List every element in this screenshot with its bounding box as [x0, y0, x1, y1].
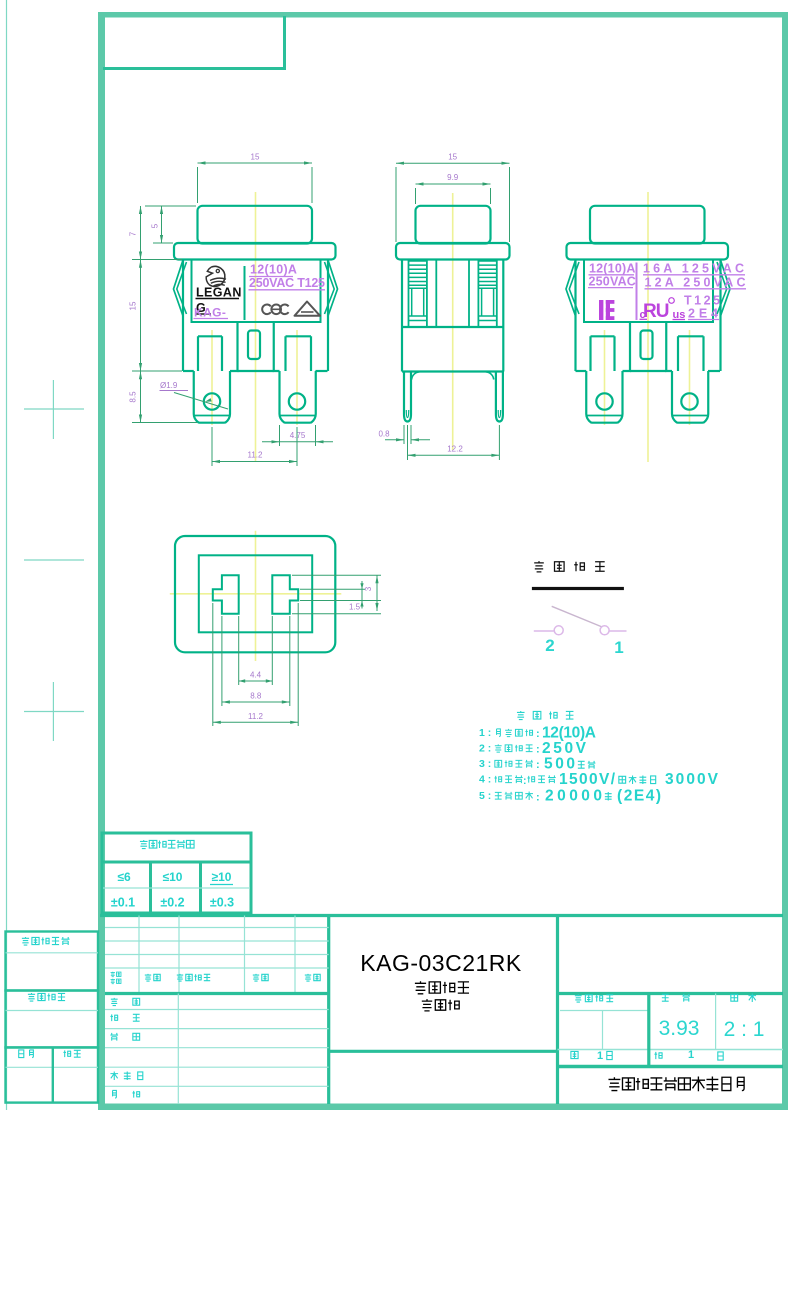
svg-text:±0.3: ±0.3: [210, 896, 234, 910]
svg-text:11.2: 11.2: [248, 451, 264, 460]
svg-text:2E4: 2E4: [688, 307, 718, 321]
svg-text:LEGAN: LEGAN: [196, 286, 242, 300]
svg-text:12(10)A: 12(10)A: [250, 263, 297, 277]
svg-text::: :: [536, 728, 540, 740]
svg-text:KAG-03C21RK: KAG-03C21RK: [360, 950, 522, 976]
svg-text:≤10: ≤10: [163, 870, 183, 884]
svg-text::: :: [536, 759, 540, 771]
svg-text:0.8: 0.8: [378, 430, 390, 439]
svg-text:2: 2: [545, 636, 554, 655]
svg-text:2 : 1: 2 : 1: [724, 1018, 765, 1041]
svg-text:8.8: 8.8: [250, 692, 262, 701]
svg-text:12(10)A: 12(10)A: [542, 725, 596, 742]
svg-text:9.9: 9.9: [447, 173, 459, 182]
svg-text:1: 1: [614, 638, 623, 657]
svg-text:3 :: 3 :: [479, 758, 491, 770]
svg-text:15: 15: [129, 301, 138, 310]
svg-text:4.75: 4.75: [290, 431, 306, 440]
svg-text:8.5: 8.5: [129, 391, 138, 403]
svg-text:≤6: ≤6: [117, 870, 131, 884]
svg-text:16A 125VAC: 16A 125VAC: [643, 262, 744, 276]
svg-text:15: 15: [251, 153, 260, 162]
svg-text:KAG-: KAG-: [194, 306, 226, 320]
svg-text:11.2: 11.2: [248, 712, 264, 721]
svg-text:Ø1.9: Ø1.9: [160, 381, 178, 390]
svg-text:≥10: ≥10: [212, 870, 232, 884]
svg-text:3: 3: [364, 586, 373, 591]
svg-text:2 :: 2 :: [479, 743, 491, 755]
svg-text:20000: 20000: [545, 788, 602, 805]
svg-text:3.93: 3.93: [659, 1017, 700, 1040]
svg-text:1: 1: [597, 1050, 603, 1062]
svg-text:4.4: 4.4: [250, 671, 262, 680]
svg-text::: :: [536, 744, 540, 756]
svg-text:500: 500: [544, 756, 575, 773]
svg-text:1.5: 1.5: [349, 603, 361, 612]
svg-text:12A 250VAC: 12A 250VAC: [645, 276, 746, 290]
svg-text:4 :: 4 :: [479, 774, 491, 786]
svg-text:±0.1: ±0.1: [111, 896, 135, 910]
svg-text::: :: [536, 792, 540, 804]
svg-text:1500V/: 1500V/: [559, 771, 616, 788]
svg-text:1 :: 1 :: [479, 727, 491, 739]
svg-text:5 :: 5 :: [479, 790, 491, 802]
svg-text:12.2: 12.2: [447, 445, 463, 454]
svg-text::: :: [523, 775, 527, 787]
svg-text:5: 5: [151, 223, 160, 228]
svg-text:250VAC: 250VAC: [589, 274, 637, 288]
svg-text:15: 15: [448, 153, 457, 162]
svg-text:±0.2: ±0.2: [160, 896, 184, 910]
svg-text:3000V: 3000V: [665, 771, 719, 788]
svg-text:250V: 250V: [542, 740, 587, 757]
svg-text:1: 1: [688, 1049, 694, 1061]
svg-text:250VAC T125: 250VAC T125: [249, 276, 325, 290]
svg-text:7: 7: [129, 231, 138, 236]
